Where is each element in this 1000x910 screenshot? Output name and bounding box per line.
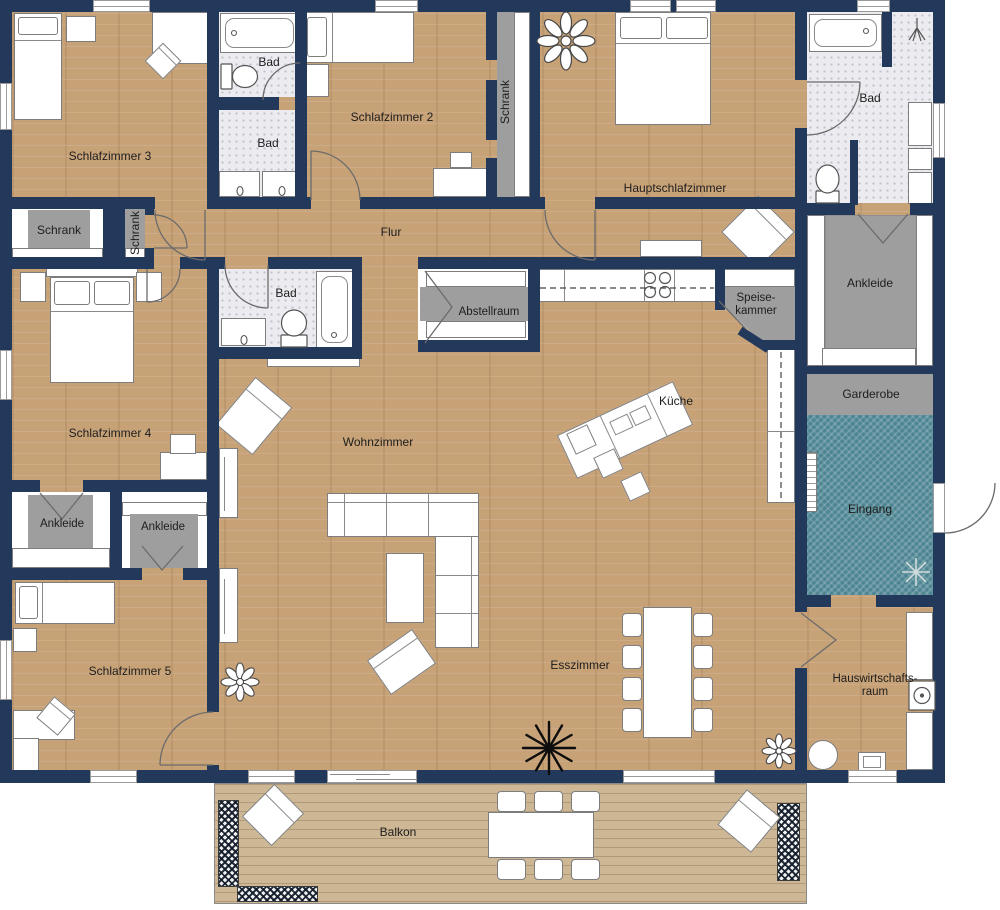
- bench-hauptschlafzimmer: [640, 240, 702, 257]
- room-label-schlafzimmer3: Schlafzimmer 3: [69, 149, 152, 163]
- nightstand-schlafzimmer5: [13, 628, 37, 652]
- room-label-garderobe: Garderobe: [842, 387, 899, 401]
- speisekammer-line1: Speise-: [735, 292, 777, 305]
- wall: [486, 80, 497, 140]
- dining-chair-l1: [622, 613, 642, 637]
- speisekammer-shelf: [718, 269, 795, 287]
- wall: [0, 770, 945, 783]
- dining-chair-l2: [622, 645, 642, 669]
- wall: [12, 480, 40, 492]
- wall: [795, 215, 807, 612]
- window: [0, 83, 12, 130]
- dining-chair-r1: [693, 613, 713, 637]
- pillow-right-hauptschlafzimmer: [666, 17, 708, 39]
- planter-bottom-balkon: [237, 886, 318, 902]
- room-label-abstellraum: Abstellraum: [459, 306, 520, 318]
- wall: [207, 765, 219, 773]
- wall: [795, 668, 807, 770]
- dining-chair-r3: [693, 677, 713, 701]
- room-label-eingang: Eingang: [848, 502, 892, 516]
- wall: [933, 0, 945, 483]
- wall: [528, 269, 540, 340]
- dining-chair-r4: [693, 708, 713, 732]
- wall: [850, 140, 858, 205]
- wall: [183, 568, 207, 580]
- window: [623, 770, 715, 783]
- wall: [486, 158, 497, 197]
- wall: [207, 197, 311, 209]
- balkon-chair-b3: [571, 859, 600, 880]
- window: [933, 103, 945, 158]
- wall: [486, 197, 545, 209]
- kitchen-counter: [537, 269, 717, 302]
- sink-cabinet-1-bad-right: [908, 102, 932, 146]
- room-label-schlafzimmer5: Schlafzimmer 5: [89, 664, 172, 678]
- planter-right-balkon: [777, 803, 800, 881]
- room-label-hauswirtschaftsraum: Hauswirtschafts- raum: [833, 673, 918, 699]
- wall: [882, 12, 892, 67]
- window: [375, 0, 418, 12]
- wall: [486, 12, 497, 60]
- balkon-chair-t1: [497, 791, 526, 812]
- room-label-schrank-left-vertical: Schrank: [128, 211, 142, 255]
- balkon-table: [488, 812, 594, 858]
- wall: [219, 97, 279, 110]
- bathtub-bad-top: [220, 13, 299, 53]
- kitchen-tall-cabinet: [767, 345, 795, 503]
- wall: [219, 257, 225, 269]
- dining-table: [643, 607, 692, 738]
- speisekammer-line2: kammer: [735, 305, 777, 318]
- room-label-schlafzimmer4: Schlafzimmer 4: [69, 426, 152, 440]
- wall: [595, 197, 807, 209]
- sink-cabinet-2-bad-right: [908, 148, 932, 170]
- island-sink-right: [629, 405, 652, 426]
- cabinet-left-2-wohnzimmer: [219, 568, 238, 643]
- room-label-flur: Flur: [381, 225, 402, 239]
- wall: [530, 12, 540, 197]
- wall: [12, 568, 142, 580]
- wall: [795, 128, 807, 210]
- bathtub-bad-right: [809, 14, 882, 52]
- wall: [795, 12, 807, 80]
- hwr-line2: raum: [833, 686, 918, 699]
- dining-chair-r2: [693, 645, 713, 669]
- wall: [807, 366, 933, 374]
- wall: [795, 203, 855, 215]
- wall: [207, 12, 219, 209]
- laundry-basket-hwr: [808, 740, 838, 770]
- nightstand-right-schlafzimmer4: [136, 272, 162, 302]
- wall: [795, 595, 831, 607]
- room-label-ankleide-left-2: Ankleide: [141, 521, 185, 533]
- wall: [295, 12, 307, 209]
- ankleide-right-wardrobe-bottom: [822, 348, 916, 366]
- wall: [933, 533, 945, 783]
- ankleide-right-wardrobe-left: [807, 215, 825, 366]
- room-label-bad-right: Bad: [859, 91, 880, 105]
- wall: [110, 492, 122, 568]
- window: [630, 0, 671, 12]
- wall: [207, 257, 219, 712]
- room-label-schlafzimmer2: Schlafzimmer 2: [351, 110, 434, 124]
- room-label-kueche: Küche: [659, 394, 693, 408]
- wall: [360, 197, 486, 209]
- room-label-wohnzimmer: Wohnzimmer: [343, 435, 413, 449]
- chair-schlafzimmer4: [170, 434, 196, 454]
- sofa-vertical: [435, 536, 479, 648]
- hwr-line1: Hauswirtschafts-: [833, 673, 918, 686]
- room-label-ankleide-left-1: Ankleide: [40, 518, 84, 530]
- desk-schlafzimmer2: [433, 168, 487, 197]
- ankleide-right-wardrobe-right: [916, 215, 933, 366]
- box-hwr: [858, 752, 886, 772]
- window: [857, 0, 890, 12]
- pillow-right-schlafzimmer4: [94, 281, 130, 305]
- floorplan: Schlafzimmer 3 Bad Bad Schlafzimmer 2 Sc…: [0, 0, 1000, 910]
- window: [676, 0, 716, 12]
- wall: [268, 257, 360, 269]
- room-label-speisekammer: Speise- kammer: [735, 292, 777, 318]
- cabinet-left-1-wohnzimmer: [219, 448, 238, 518]
- balkon-chair-t2: [534, 791, 563, 812]
- wall: [715, 257, 725, 310]
- abstellraum-shelf-top: [426, 271, 526, 287]
- ankleide-left-1-wardrobe: [12, 548, 110, 568]
- wall: [418, 340, 540, 352]
- desk-schlafzimmer4: [160, 452, 207, 480]
- wall: [83, 480, 207, 492]
- room-label-bad-middle: Bad: [275, 286, 296, 300]
- pillow-left-schlafzimmer4: [54, 281, 90, 305]
- sink-left-bad-lower: [219, 171, 260, 197]
- wall: [876, 595, 933, 607]
- window: [93, 0, 150, 12]
- window: [848, 770, 897, 783]
- planter-left-balkon: [218, 800, 239, 887]
- wall: [352, 257, 362, 357]
- chair-schlafzimmer2: [450, 152, 472, 168]
- nightstand-schlafzimmer3: [66, 16, 96, 42]
- sofa-horizontal: [327, 493, 479, 537]
- counter-bottom-hwr: [906, 712, 933, 770]
- room-label-hauptschlafzimmer: Hauptschlafzimmer: [624, 181, 727, 195]
- wall: [418, 257, 795, 269]
- room-label-schrank-left: Schrank: [37, 223, 81, 237]
- room-label-schrank-top: Schrank: [498, 80, 512, 124]
- schrank-top-wardrobe: [514, 12, 530, 197]
- sliding-door-balkon: [327, 770, 417, 783]
- pillow-schlafzimmer3: [18, 17, 58, 35]
- room-label-bad-top-lower: Bad: [257, 136, 278, 150]
- abstellraum-shelf-bottom: [426, 321, 526, 338]
- wall: [910, 203, 945, 215]
- dining-chair-l4: [622, 708, 642, 732]
- wall: [12, 197, 155, 209]
- wall: [219, 347, 362, 359]
- wall: [145, 209, 154, 215]
- island-sink-left: [609, 414, 633, 436]
- room-label-bad-top-upper: Bad: [258, 55, 279, 69]
- sink-bad-middle: [221, 318, 266, 346]
- room-label-ankleide-right: Ankleide: [847, 276, 893, 290]
- sink-cabinet-3-bad-right: [908, 172, 932, 204]
- balkon-chair-b2: [534, 859, 563, 880]
- window: [0, 350, 12, 400]
- room-label-balkon: Balkon: [380, 825, 417, 839]
- room-label-esszimmer: Esszimmer: [550, 658, 609, 672]
- window: [248, 770, 295, 783]
- window: [90, 770, 137, 783]
- balkon-chair-b1: [497, 859, 526, 880]
- wall: [103, 209, 125, 257]
- pillow-left-hauptschlafzimmer: [620, 17, 662, 39]
- nightstand-left-schlafzimmer4: [20, 272, 46, 302]
- pillow-schlafzimmer2: [307, 17, 327, 57]
- balkon-chair-t3: [571, 791, 600, 812]
- wall: [145, 248, 154, 269]
- coffee-table: [386, 553, 424, 623]
- counter-top-hwr: [906, 612, 933, 680]
- wall: [12, 257, 146, 269]
- bathtub-bad-middle: [316, 271, 353, 348]
- dining-chair-l3: [622, 677, 642, 701]
- pillow-schlafzimmer5: [19, 586, 38, 619]
- window: [0, 640, 12, 700]
- entry-door-leaf: [933, 483, 945, 533]
